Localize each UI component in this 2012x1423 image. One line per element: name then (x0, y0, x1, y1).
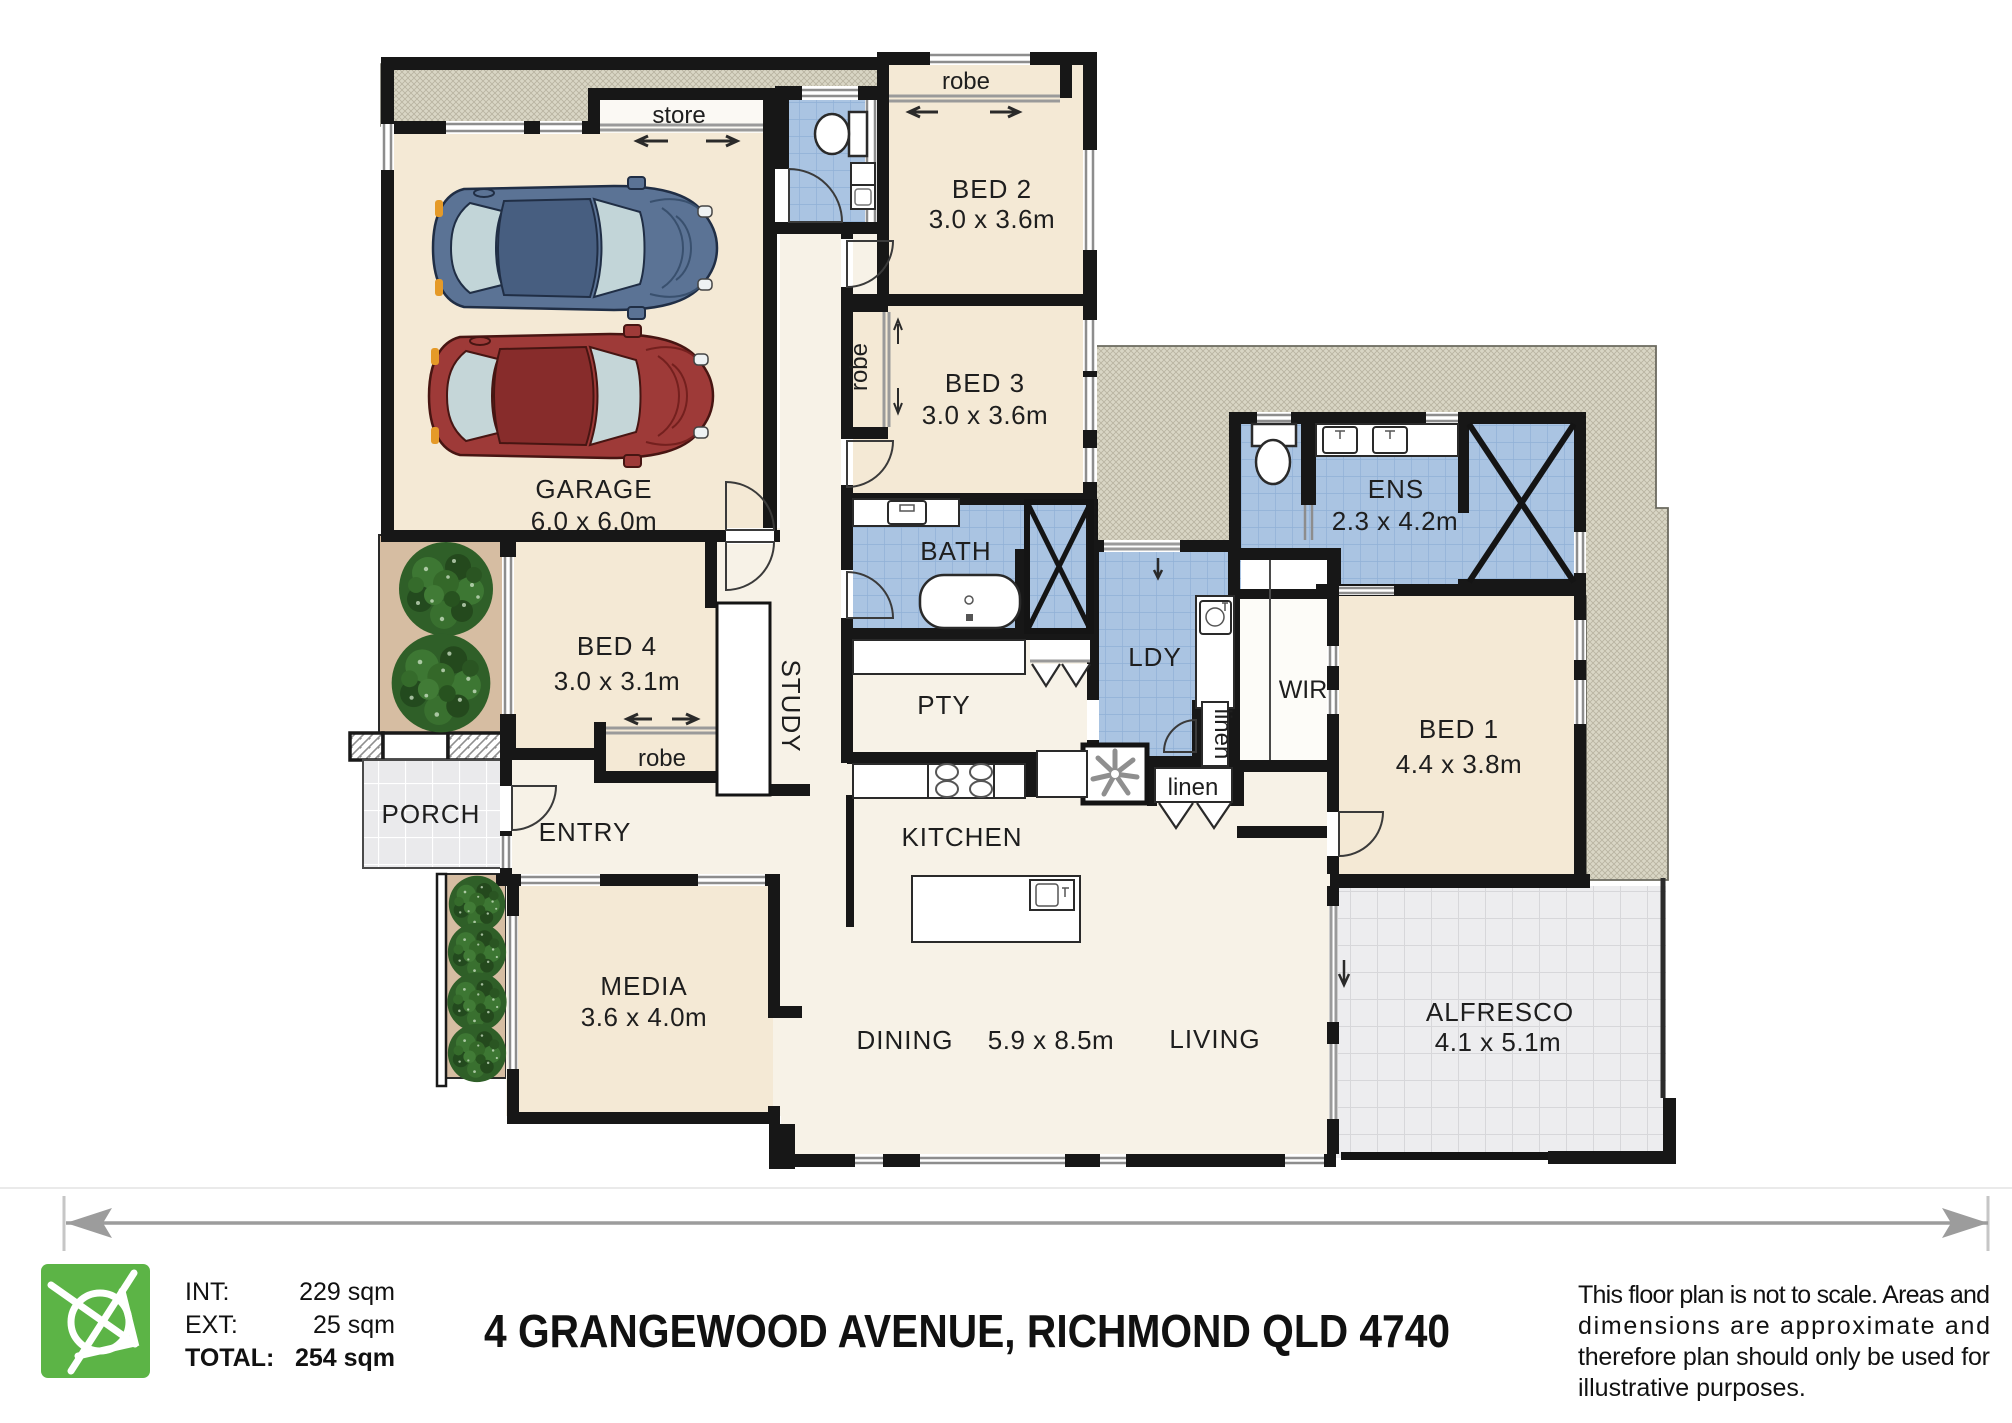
svg-text:3.0 x 3.6m: 3.0 x 3.6m (929, 204, 1055, 234)
svg-text:3.0 x 3.6m: 3.0 x 3.6m (922, 400, 1048, 430)
svg-text:BED 3: BED 3 (945, 368, 1025, 398)
svg-text:PTY: PTY (917, 690, 971, 720)
svg-text:4.1 x 5.1m: 4.1 x 5.1m (1435, 1027, 1561, 1057)
svg-text:5.9 x 8.5m: 5.9 x 8.5m (988, 1025, 1114, 1055)
svg-text:robe: robe (846, 343, 873, 391)
svg-text:robe: robe (638, 745, 686, 772)
svg-text:illustrative purposes.: illustrative purposes. (1578, 1374, 1806, 1402)
svg-text:6.0 x 6.0m: 6.0 x 6.0m (531, 506, 657, 536)
svg-text:This floor plan is not to scal: This floor plan is not to scale. Areas a… (1578, 1281, 1990, 1309)
svg-text:3.6 x 4.0m: 3.6 x 4.0m (581, 1002, 707, 1032)
svg-text:STUDY: STUDY (776, 659, 806, 752)
svg-text:DINING: DINING (857, 1025, 954, 1055)
svg-text:229 sqm: 229 sqm (299, 1278, 395, 1306)
svg-text:TOTAL:: TOTAL: (185, 1344, 274, 1372)
svg-text:ENTRY: ENTRY (539, 817, 632, 847)
svg-text:therefore plan should only be: therefore plan should only be used for (1578, 1343, 1990, 1371)
svg-text:EXT:: EXT: (185, 1311, 238, 1339)
svg-text:linen: linen (1168, 774, 1219, 801)
svg-text:4 GRANGEWOOD AVENUE, RICHMOND: 4 GRANGEWOOD AVENUE, RICHMOND QLD 4740 (484, 1305, 1450, 1357)
svg-text:linen: linen (1209, 709, 1236, 760)
svg-text:BED 1: BED 1 (1419, 714, 1499, 744)
svg-text:BED 4: BED 4 (577, 631, 657, 661)
svg-text:LIVING: LIVING (1169, 1024, 1260, 1054)
svg-text:WIR: WIR (1279, 676, 1328, 704)
svg-text:KITCHEN: KITCHEN (901, 822, 1022, 852)
svg-text:PORCH: PORCH (382, 799, 481, 829)
svg-text:LDY: LDY (1128, 642, 1182, 672)
svg-text:BED 2: BED 2 (952, 174, 1032, 204)
svg-text:254 sqm: 254 sqm (295, 1344, 395, 1372)
svg-text:BATH: BATH (920, 536, 991, 566)
svg-text:2.3 x 4.2m: 2.3 x 4.2m (1332, 506, 1458, 536)
svg-text:ALFRESCO: ALFRESCO (1426, 997, 1574, 1027)
svg-text:store: store (652, 102, 705, 129)
svg-text:robe: robe (942, 68, 990, 95)
svg-text:4.4 x 3.8m: 4.4 x 3.8m (1396, 749, 1522, 779)
svg-text:3.0 x 3.1m: 3.0 x 3.1m (554, 666, 680, 696)
svg-text:25 sqm: 25 sqm (313, 1311, 395, 1339)
svg-text:INT:: INT: (185, 1278, 229, 1306)
svg-text:GARAGE: GARAGE (535, 474, 652, 504)
svg-text:dimensions are approximate and: dimensions are approximate and (1578, 1312, 1990, 1340)
svg-text:ENS: ENS (1368, 474, 1424, 504)
svg-text:MEDIA: MEDIA (600, 971, 687, 1001)
